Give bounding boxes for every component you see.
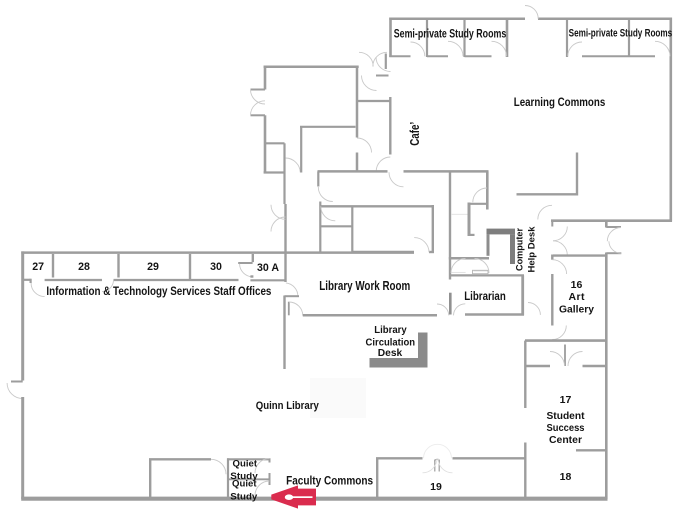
svg-text:30 A: 30 A: [257, 262, 279, 274]
svg-text:27: 27: [32, 261, 44, 273]
svg-text:Desk: Desk: [378, 347, 403, 359]
svg-text:Library Work Room: Library Work Room: [319, 278, 410, 293]
svg-text:18: 18: [560, 471, 572, 483]
svg-text:Quiet: Quiet: [232, 478, 257, 488]
svg-text:29: 29: [147, 261, 159, 273]
svg-text:Semi-private Study Rooms: Semi-private Study Rooms: [394, 26, 507, 40]
svg-text:Computer: Computer: [515, 228, 526, 271]
svg-text:16: 16: [571, 279, 583, 291]
svg-text:Faculty Commons: Faculty Commons: [286, 473, 373, 487]
svg-text:17: 17: [560, 394, 572, 406]
svg-text:19: 19: [430, 481, 442, 493]
svg-text:Information & Technology Servi: Information & Technology Services Staff …: [46, 284, 271, 298]
svg-text:Library: Library: [374, 324, 407, 336]
svg-text:Quiet: Quiet: [233, 458, 258, 468]
svg-text:Center: Center: [549, 434, 582, 446]
svg-text:Librarian: Librarian: [464, 289, 506, 303]
svg-text:Art: Art: [569, 291, 586, 303]
svg-text:Student: Student: [547, 410, 585, 422]
svg-text:Gallery: Gallery: [559, 303, 594, 315]
svg-text:Cafe’: Cafe’: [407, 122, 422, 146]
svg-text:Study: Study: [230, 491, 257, 501]
svg-text:Semi-private Study Rooms: Semi-private Study Rooms: [569, 28, 673, 40]
svg-text:Quinn Library: Quinn Library: [256, 400, 320, 412]
svg-text:Learning Commons: Learning Commons: [514, 97, 606, 109]
svg-text:30: 30: [210, 261, 222, 273]
svg-text:28: 28: [78, 261, 90, 273]
svg-text:Help Desk: Help Desk: [527, 226, 538, 273]
svg-text:Success: Success: [547, 422, 585, 434]
